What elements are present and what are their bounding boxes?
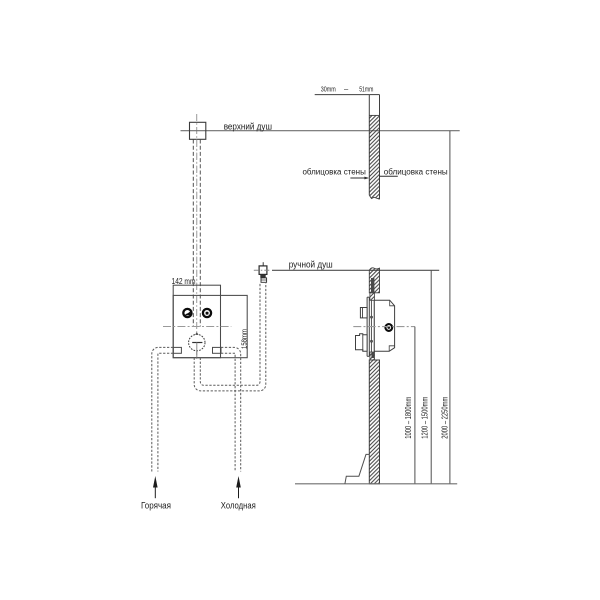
- svg-text:30mm: 30mm: [321, 85, 336, 94]
- svg-text:Холодная: Холодная: [221, 501, 256, 511]
- svg-text:ручной душ: ручной душ: [289, 258, 333, 269]
- svg-text:облицовка стены: облицовка стены: [303, 167, 367, 176]
- svg-text:–: –: [344, 85, 349, 94]
- svg-text:158mm: 158mm: [239, 329, 248, 349]
- svg-text:верхний душ: верхний душ: [224, 120, 272, 131]
- svg-text:Горячая: Горячая: [141, 501, 171, 511]
- svg-text:142 mm: 142 mm: [172, 276, 196, 286]
- svg-text:51mm: 51mm: [359, 85, 373, 94]
- svg-text:1000 – 1800mm: 1000 – 1800mm: [404, 396, 413, 438]
- svg-text:1200 – 1500mm: 1200 – 1500mm: [421, 396, 430, 438]
- svg-text:2000 – 2250mm: 2000 – 2250mm: [441, 396, 450, 438]
- svg-text:облицовка стены: облицовка стены: [384, 167, 448, 176]
